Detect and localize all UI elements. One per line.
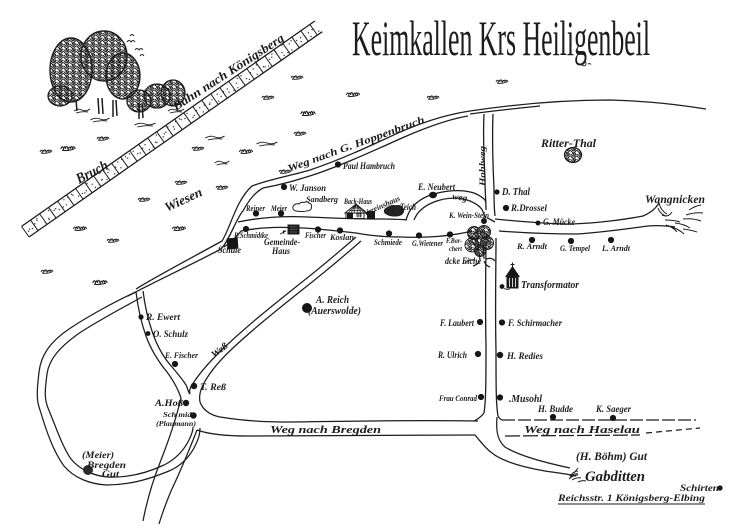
svg-text:K. Saeger: K. Saeger	[595, 404, 631, 414]
svg-text:Sandberg: Sandberg	[306, 194, 339, 204]
svg-text:F. Schirmacher: F. Schirmacher	[507, 318, 562, 328]
svg-text:Gabditten: Gabditten	[585, 469, 645, 485]
svg-text:Weg nach Haselau: Weg nach Haselau	[524, 424, 640, 436]
svg-text:Frau Conrad: Frau Conrad	[438, 393, 477, 403]
svg-text:Keimkallen Krs Heiligenbeil: Keimkallen Krs Heiligenbeil	[352, 10, 650, 66]
svg-text:(Plaumann): (Plaumann)	[156, 419, 197, 428]
svg-text:chert: chert	[449, 244, 463, 253]
svg-text:E. Neubert: E. Neubert	[417, 183, 455, 193]
svg-text:H. Budde: H. Budde	[537, 404, 573, 414]
svg-text:D. Thal: D. Thal	[501, 187, 530, 198]
svg-text:dcke Eiche: dcke Eiche	[445, 256, 481, 266]
svg-text:G. Mücke: G. Mücke	[543, 217, 575, 227]
svg-text:O. Schulz: O. Schulz	[153, 329, 188, 339]
svg-text:Weg nach Bregden: Weg nach Bregden	[270, 424, 381, 436]
svg-text:Schule: Schule	[218, 245, 241, 255]
svg-text:(Meier): (Meier)	[82, 450, 114, 461]
svg-text:G. Tempel: G. Tempel	[560, 243, 591, 253]
svg-text:Koslan: Koslan	[329, 232, 354, 242]
svg-text:Reiner: Reiner	[245, 203, 265, 213]
svg-text:R. Ulrich: R. Ulrich	[437, 350, 467, 360]
svg-text:Transformator: Transformator	[521, 280, 579, 291]
svg-text:Ritter-Thal: Ritter-Thal	[540, 136, 597, 150]
svg-text:(Auerswolde): (Auerswolde)	[308, 306, 361, 317]
svg-text:F. Laubert: F. Laubert	[439, 318, 474, 328]
svg-text:Meier: Meier	[270, 203, 287, 213]
svg-text:R. Arndt: R. Arndt	[516, 241, 548, 251]
svg-text:Sch midt: Sch midt	[163, 410, 195, 419]
svg-text:Fischer: Fischer	[304, 230, 326, 240]
svg-text:Gut: Gut	[102, 470, 119, 480]
svg-text:Haus: Haus	[271, 246, 290, 256]
svg-text:Hohlweg: Hohlweg	[477, 145, 487, 187]
svg-text:A. Reich: A. Reich	[315, 295, 349, 306]
svg-text:W. Janson: W. Janson	[289, 184, 326, 194]
svg-text:A.Hoß: A.Hoß	[154, 398, 184, 408]
svg-text:Reichsstr. 1 Königsberg-Elbin: Reichsstr. 1 Königsberg-Elbing	[557, 494, 705, 504]
svg-text:R. Ewert: R. Ewert	[145, 312, 181, 322]
svg-text:L. Arndt: L. Arndt	[601, 243, 631, 253]
svg-text:Wangnicken: Wangnicken	[645, 194, 705, 206]
svg-text:Back-Haus: Back-Haus	[343, 196, 372, 206]
svg-text:R.Drossel: R.Drossel	[510, 204, 547, 214]
svg-text:weg: weg	[452, 191, 469, 203]
svg-text:Schmiede: Schmiede	[374, 237, 402, 247]
svg-text:T. Reß: T. Reß	[200, 383, 226, 393]
svg-text:G.Wietener: G.Wietener	[412, 238, 444, 248]
svg-text:Paul Hambruch: Paul Hambruch	[343, 161, 395, 171]
svg-text:K. Wein-Stein: K. Wein-Stein	[448, 211, 489, 220]
svg-text:(H. Böhm) Gut: (H. Böhm) Gut	[576, 449, 648, 463]
svg-text:E. Fischer: E. Fischer	[164, 350, 199, 360]
svg-text:Teich: Teich	[400, 203, 416, 213]
svg-text:H. Redies: H. Redies	[506, 352, 543, 362]
svg-text:Schirten: Schirten	[680, 484, 719, 494]
